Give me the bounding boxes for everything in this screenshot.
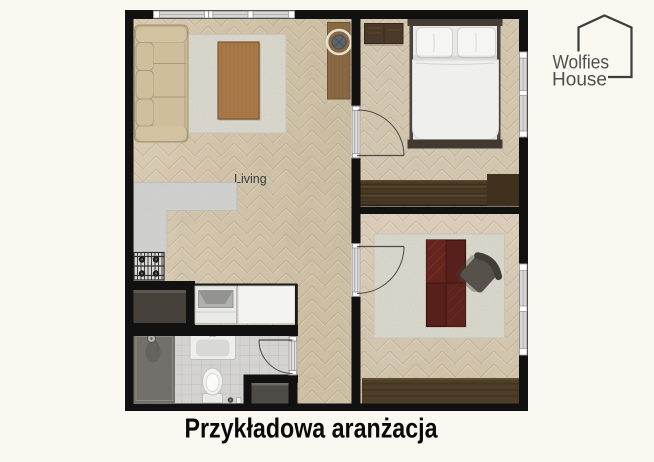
svg-text:House: House [552, 70, 607, 91]
svg-text:Przykładowa aranżacja: Przykładowa aranżacja [185, 413, 438, 444]
svg-text:Living: Living [234, 172, 267, 186]
